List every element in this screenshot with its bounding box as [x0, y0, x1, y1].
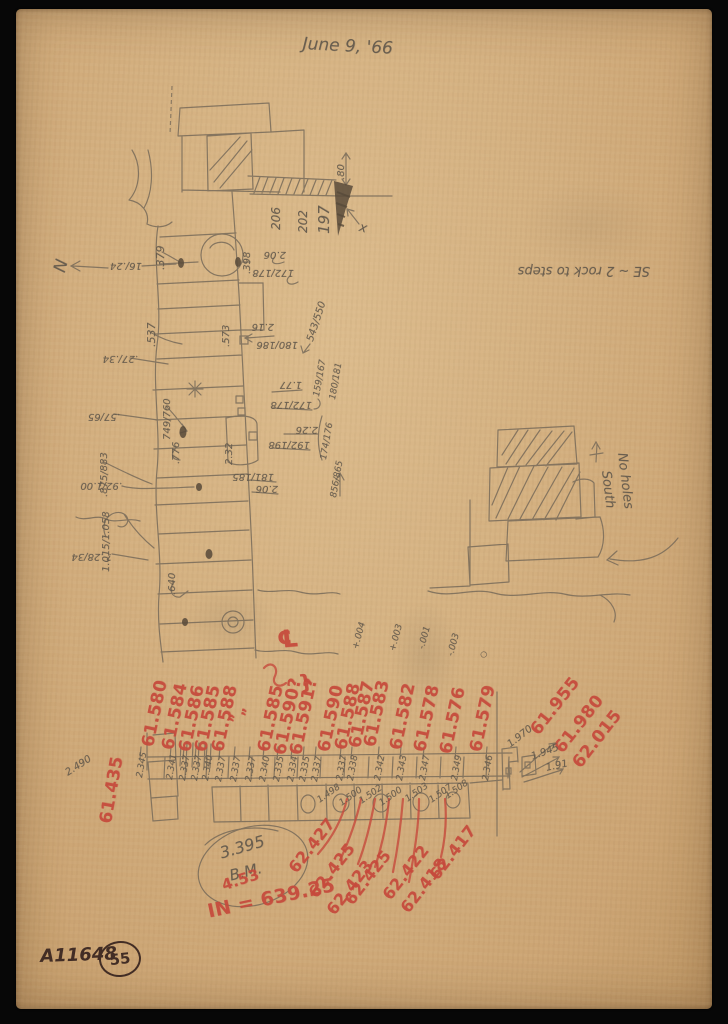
graphite-fills: [178, 181, 353, 626]
measurement-label: 1.77: [280, 379, 302, 389]
dashed-edge: [170, 86, 172, 134]
measurement-label: 2.26: [296, 424, 318, 434]
scanned-field-sketch: .37916/.24.537.27/.34.57/65749/760.776.8…: [0, 0, 728, 1024]
measurement-label: 2.16: [252, 321, 274, 331]
measurement-label: .80: [337, 164, 347, 180]
hatched-wedge: [334, 181, 353, 236]
measurement-label: 1.015/1.058: [102, 511, 112, 572]
measurement-label: 197: [317, 205, 332, 234]
measurement-label: ? .28/34: [72, 551, 112, 561]
measurement-label: 180/186: [256, 339, 298, 349]
measurement-label: 181/185: [232, 471, 274, 481]
measurement-label: .573: [222, 325, 232, 347]
measurement-label: .57/65: [88, 411, 120, 421]
measurement-label: 16/.24: [110, 260, 142, 270]
measurement-label: 172/178: [270, 399, 312, 409]
measurement-label: 749/760: [163, 398, 173, 440]
sheet-number: 55: [109, 949, 132, 969]
measurement-label: 172/178: [252, 267, 294, 277]
measurement-label: .537: [146, 323, 157, 348]
measurement-label: .27/.34: [103, 353, 138, 363]
measurement-label: 2.06: [264, 249, 286, 259]
measurement-label: .776: [172, 442, 182, 464]
measurement-label: 206: [270, 207, 282, 230]
measurement-label: 192/198: [268, 439, 310, 449]
note-rock-to-steps: SE ~ 2 rock to steps: [518, 264, 650, 277]
date-note: June 9, '66: [302, 36, 393, 58]
measurement-label: .92/1.00: [80, 480, 122, 490]
measurement-label: .640: [168, 573, 178, 595]
measurement-label: 202: [297, 210, 309, 233]
centerline-symbol: ℄: [276, 626, 300, 652]
measurement-label: 2.06: [256, 483, 278, 493]
north-arrow: [71, 261, 108, 271]
measurement-label: .379: [155, 246, 166, 271]
measurement-label: 2.32: [225, 443, 235, 465]
